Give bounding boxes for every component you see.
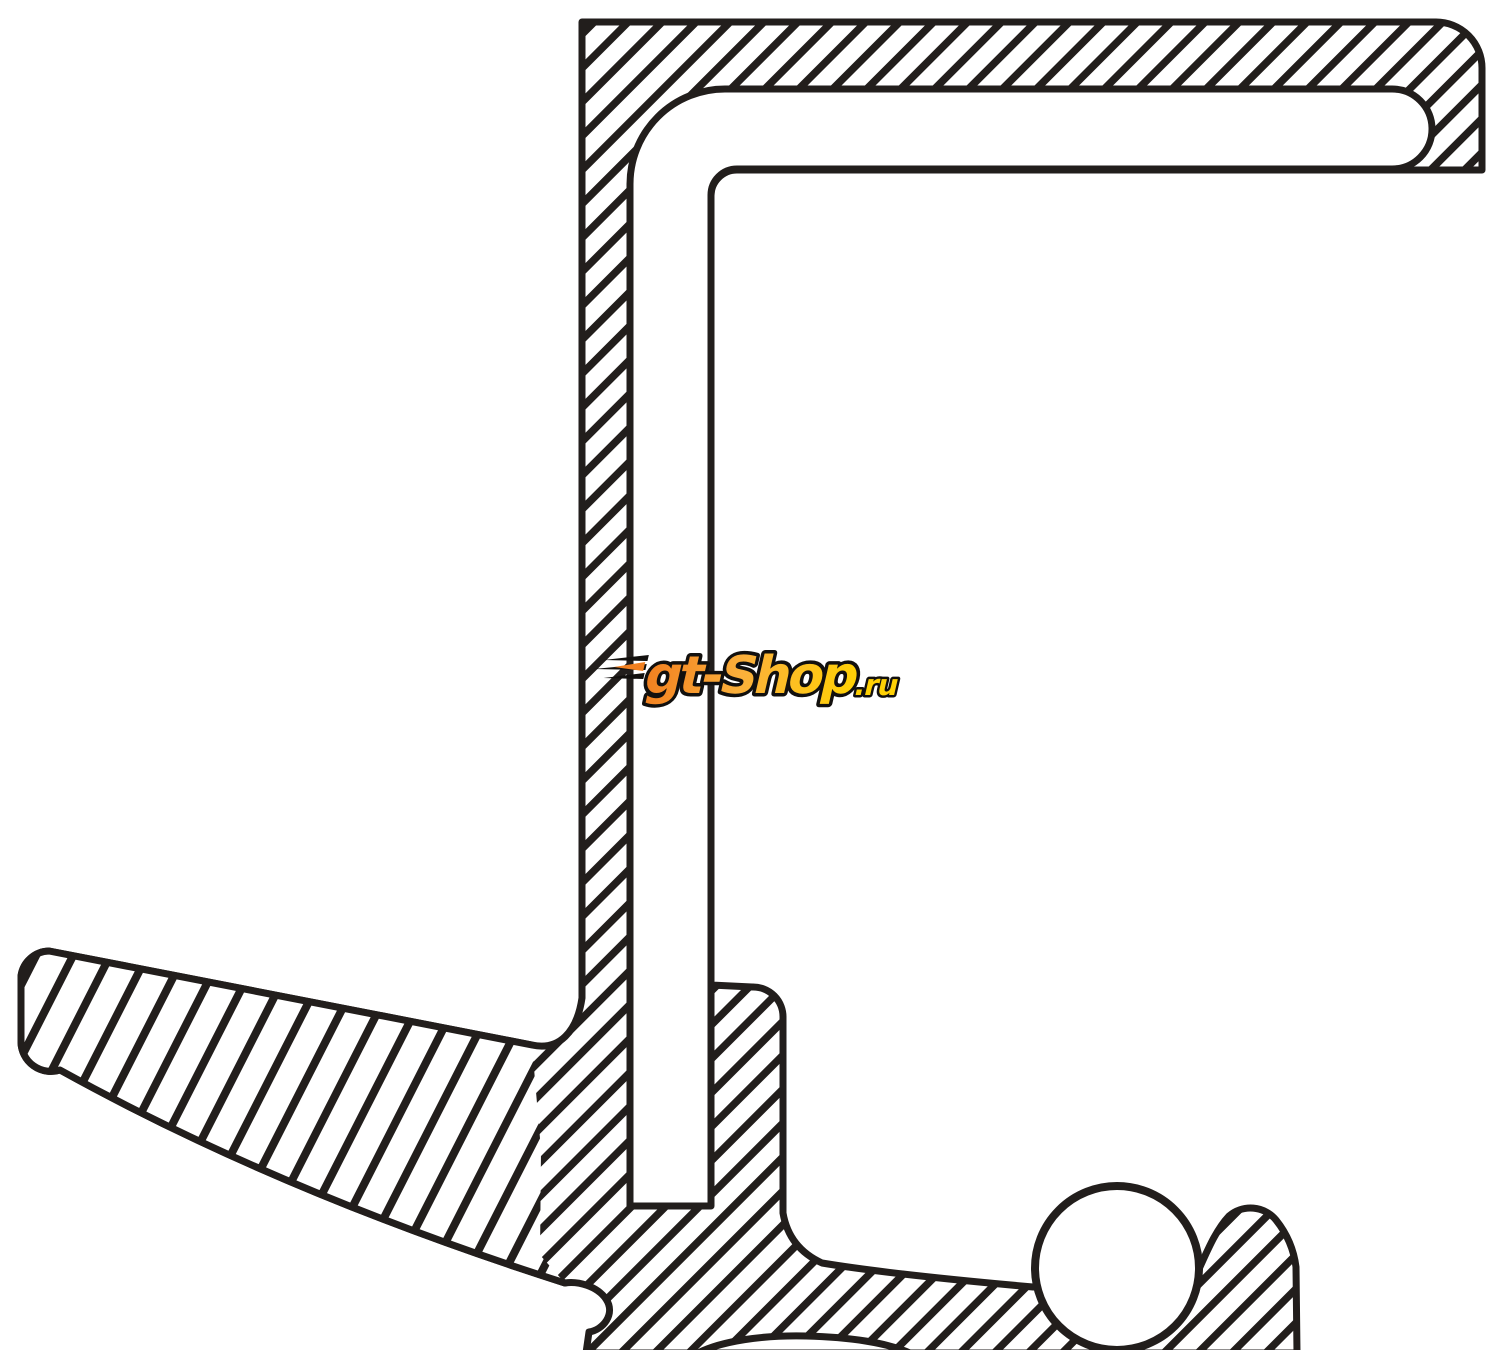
garter-spring-circle [1035, 1186, 1199, 1350]
diagram-canvas: gt-Shop .ru [0, 0, 1500, 1350]
watermark-suffix-text: .ru [851, 668, 902, 702]
oil-seal-cross-section-diagram: gt-Shop .ru [0, 0, 1500, 1350]
watermark-main-text: gt-Shop [639, 646, 864, 706]
